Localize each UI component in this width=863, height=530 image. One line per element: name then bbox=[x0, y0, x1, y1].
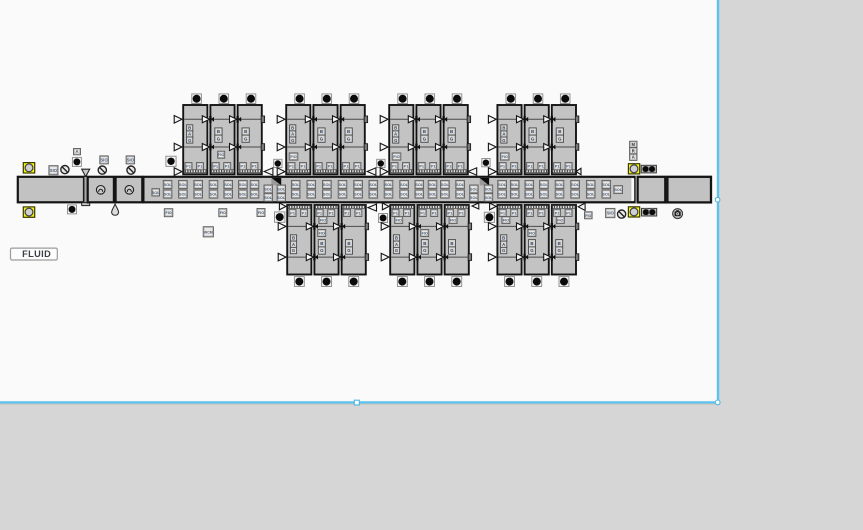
svg-text:P1: P1 bbox=[344, 164, 350, 169]
svg-text:P1: P1 bbox=[528, 164, 534, 169]
svg-text:G: G bbox=[502, 138, 505, 143]
svg-text:P1: P1 bbox=[431, 164, 437, 169]
svg-text:SOL: SOL bbox=[339, 182, 348, 187]
svg-text:SOL: SOL bbox=[224, 182, 233, 187]
svg-text:G: G bbox=[531, 136, 535, 141]
svg-text:G: G bbox=[450, 136, 454, 141]
svg-text:A: A bbox=[394, 132, 397, 137]
svg-text:SOL: SOL bbox=[498, 192, 507, 197]
svg-text:WCM: WCM bbox=[204, 230, 213, 234]
svg-text:SOL: SOL bbox=[307, 182, 316, 187]
svg-text:SOL: SOL bbox=[470, 187, 479, 192]
svg-text:SOL: SOL bbox=[470, 195, 479, 200]
svg-text:P1: P1 bbox=[432, 210, 438, 215]
svg-text:P1: P1 bbox=[316, 164, 322, 169]
svg-text:P1: P1 bbox=[329, 210, 335, 215]
svg-text:FIO: FIO bbox=[319, 232, 325, 236]
svg-text:FIO: FIO bbox=[502, 155, 508, 159]
svg-text:FIO: FIO bbox=[290, 155, 296, 159]
svg-text:P1: P1 bbox=[500, 210, 506, 215]
svg-text:P1: P1 bbox=[512, 210, 518, 215]
svg-text:SOL: SOL bbox=[369, 182, 378, 187]
svg-text:SOL: SOL bbox=[441, 192, 450, 197]
svg-text:P1: P1 bbox=[512, 164, 518, 169]
svg-text:P1: P1 bbox=[539, 164, 545, 169]
svg-text:SOL: SOL bbox=[251, 192, 260, 197]
svg-text:A: A bbox=[395, 242, 398, 247]
svg-text:G: G bbox=[557, 248, 561, 253]
svg-text:P1: P1 bbox=[355, 164, 361, 169]
svg-text:SOL: SOL bbox=[251, 182, 260, 187]
svg-text:SOL: SOL bbox=[485, 187, 494, 192]
svg-text:SOL: SOL bbox=[400, 192, 409, 197]
svg-text:A: A bbox=[188, 132, 191, 137]
svg-text:B: B bbox=[217, 129, 220, 134]
svg-text:FIO: FIO bbox=[529, 232, 535, 236]
svg-text:SOL: SOL bbox=[456, 182, 465, 187]
svg-text:P1: P1 bbox=[448, 210, 454, 215]
svg-text:A: A bbox=[632, 155, 635, 160]
svg-text:B: B bbox=[450, 129, 453, 134]
svg-text:G: G bbox=[320, 248, 324, 253]
svg-text:A: A bbox=[292, 242, 295, 247]
svg-text:B: B bbox=[347, 241, 350, 246]
svg-text:SOL: SOL bbox=[323, 192, 332, 197]
svg-text:SOL: SOL bbox=[456, 192, 465, 197]
svg-text:FIO: FIO bbox=[450, 219, 456, 223]
svg-text:SOL: SOL bbox=[210, 192, 219, 197]
svg-text:B: B bbox=[502, 126, 505, 131]
svg-text:SOL: SOL bbox=[339, 192, 348, 197]
svg-text:SIO: SIO bbox=[50, 168, 58, 173]
svg-text:SOL: SOL bbox=[239, 182, 248, 187]
svg-text:SOL: SOL bbox=[292, 182, 301, 187]
svg-text:P1: P1 bbox=[301, 164, 307, 169]
svg-text:SOL: SOL bbox=[511, 192, 520, 197]
svg-text:B: B bbox=[502, 236, 505, 241]
svg-text:FIO: FIO bbox=[396, 219, 402, 223]
svg-text:SOL: SOL bbox=[277, 187, 286, 192]
svg-text:G: G bbox=[347, 248, 351, 253]
svg-text:SOL: SOL bbox=[354, 182, 363, 187]
svg-text:P1: P1 bbox=[198, 164, 204, 169]
svg-text:P1: P1 bbox=[404, 164, 410, 169]
svg-text:P1: P1 bbox=[345, 210, 351, 215]
svg-text:G: G bbox=[217, 136, 221, 141]
svg-text:G: G bbox=[423, 248, 427, 253]
svg-text:SOL: SOL bbox=[571, 192, 580, 197]
svg-text:B: B bbox=[395, 236, 398, 241]
svg-text:SOL: SOL bbox=[429, 182, 438, 187]
svg-text:SOL: SOL bbox=[415, 182, 424, 187]
svg-text:SOL: SOL bbox=[224, 192, 233, 197]
svg-text:SOL: SOL bbox=[354, 192, 363, 197]
svg-text:P1: P1 bbox=[420, 210, 426, 215]
svg-text:B: B bbox=[558, 241, 561, 246]
svg-text:B: B bbox=[558, 129, 561, 134]
svg-text:P1: P1 bbox=[566, 164, 572, 169]
svg-text:SOL: SOL bbox=[264, 187, 273, 192]
svg-text:SIO: SIO bbox=[127, 157, 135, 162]
svg-text:B: B bbox=[320, 129, 323, 134]
svg-text:G: G bbox=[394, 138, 397, 143]
svg-text:FIO: FIO bbox=[166, 211, 172, 215]
svg-text:FIO: FIO bbox=[218, 153, 224, 157]
svg-text:B: B bbox=[423, 129, 426, 134]
svg-text:G: G bbox=[558, 136, 562, 141]
svg-text:FIO: FIO bbox=[220, 211, 226, 215]
svg-text:SOL: SOL bbox=[614, 187, 623, 192]
svg-text:P1: P1 bbox=[539, 210, 545, 215]
svg-text:FIO: FIO bbox=[393, 155, 399, 159]
svg-text:P1: P1 bbox=[317, 210, 323, 215]
svg-text:P1: P1 bbox=[392, 164, 398, 169]
svg-text:B: B bbox=[244, 129, 247, 134]
svg-text:G: G bbox=[244, 136, 248, 141]
svg-text:G: G bbox=[292, 248, 295, 253]
svg-text:P1: P1 bbox=[458, 164, 464, 169]
svg-text:P1: P1 bbox=[213, 164, 219, 169]
svg-text:SOL: SOL bbox=[385, 192, 394, 197]
svg-text:B: B bbox=[531, 129, 534, 134]
svg-text:SOL: SOL bbox=[400, 182, 409, 187]
svg-text:SOL: SOL bbox=[556, 192, 565, 197]
svg-text:SIO: SIO bbox=[100, 157, 108, 162]
svg-text:SOL: SOL bbox=[307, 192, 316, 197]
svg-text:B: B bbox=[450, 241, 453, 246]
svg-text:SOL: SOL bbox=[525, 182, 534, 187]
svg-text:SIO: SIO bbox=[607, 211, 615, 216]
svg-text:P1: P1 bbox=[356, 210, 362, 215]
svg-text:G: G bbox=[291, 138, 294, 143]
svg-text:P1: P1 bbox=[225, 164, 231, 169]
svg-text:FIO: FIO bbox=[258, 211, 264, 215]
svg-text:SOL: SOL bbox=[511, 182, 520, 187]
svg-text:FIO: FIO bbox=[503, 219, 509, 223]
svg-text:SOL: SOL bbox=[571, 182, 580, 187]
svg-text:SOL: SOL bbox=[441, 182, 450, 187]
svg-text:P1: P1 bbox=[289, 164, 295, 169]
svg-text:R: R bbox=[632, 148, 635, 153]
svg-text:SOL: SOL bbox=[323, 182, 332, 187]
svg-text:SOL: SOL bbox=[540, 182, 549, 187]
svg-text:G: G bbox=[502, 248, 505, 253]
svg-text:SOL: SOL bbox=[194, 192, 203, 197]
svg-text:FIO: FIO bbox=[320, 219, 326, 223]
svg-text:SOL: SOL bbox=[429, 192, 438, 197]
svg-text:B: B bbox=[530, 241, 533, 246]
svg-text:SOL: SOL bbox=[152, 190, 161, 195]
svg-text:FIO: FIO bbox=[585, 214, 591, 218]
svg-text:FIO: FIO bbox=[557, 219, 563, 223]
svg-text:SOL: SOL bbox=[587, 192, 596, 197]
svg-text:P1: P1 bbox=[186, 164, 192, 169]
svg-text:P1: P1 bbox=[447, 164, 453, 169]
svg-text:SOL: SOL bbox=[602, 192, 611, 197]
svg-text:B: B bbox=[394, 126, 397, 131]
svg-text:P1: P1 bbox=[302, 210, 308, 215]
svg-text:P1: P1 bbox=[528, 210, 534, 215]
svg-text:SOL: SOL bbox=[498, 182, 507, 187]
svg-text:SOL: SOL bbox=[556, 182, 565, 187]
svg-text:SOL: SOL bbox=[164, 192, 173, 197]
svg-text:FLUID: FLUID bbox=[22, 249, 51, 259]
svg-text:G: G bbox=[423, 136, 427, 141]
svg-text:SOL: SOL bbox=[239, 192, 248, 197]
svg-text:B: B bbox=[291, 126, 294, 131]
svg-text:P1: P1 bbox=[566, 210, 572, 215]
svg-text:FIO: FIO bbox=[422, 232, 428, 236]
svg-text:P1: P1 bbox=[252, 164, 258, 169]
svg-text:SOL: SOL bbox=[540, 192, 549, 197]
svg-text:SOL: SOL bbox=[415, 192, 424, 197]
svg-text:A: A bbox=[502, 242, 505, 247]
svg-text:G: G bbox=[530, 248, 534, 253]
svg-text:SOL: SOL bbox=[210, 182, 219, 187]
svg-text:SOL: SOL bbox=[587, 182, 596, 187]
svg-text:SOL: SOL bbox=[264, 195, 273, 200]
svg-text:SOL: SOL bbox=[602, 182, 611, 187]
svg-text:B: B bbox=[320, 241, 323, 246]
svg-text:SOL: SOL bbox=[179, 192, 188, 197]
svg-text:P1: P1 bbox=[405, 210, 411, 215]
svg-text:P1: P1 bbox=[555, 164, 561, 169]
svg-text:G: G bbox=[188, 138, 191, 143]
svg-text:SOL: SOL bbox=[164, 182, 173, 187]
svg-text:SOL: SOL bbox=[369, 192, 378, 197]
svg-text:B: B bbox=[347, 129, 350, 134]
svg-text:B: B bbox=[188, 126, 191, 131]
svg-text:P1: P1 bbox=[328, 164, 334, 169]
svg-text:SOL: SOL bbox=[179, 182, 188, 187]
svg-text:SOL: SOL bbox=[292, 192, 301, 197]
svg-text:A: A bbox=[502, 132, 505, 137]
svg-text:G: G bbox=[450, 248, 454, 253]
svg-text:G: G bbox=[320, 136, 324, 141]
svg-text:G: G bbox=[347, 136, 351, 141]
svg-text:P1: P1 bbox=[419, 164, 425, 169]
svg-text:SOL: SOL bbox=[385, 182, 394, 187]
svg-text:P1: P1 bbox=[393, 210, 399, 215]
svg-text:B: B bbox=[423, 241, 426, 246]
svg-text:SOL: SOL bbox=[525, 192, 534, 197]
svg-text:SOL: SOL bbox=[277, 195, 286, 200]
svg-text:P1: P1 bbox=[459, 210, 465, 215]
svg-text:P1: P1 bbox=[290, 210, 296, 215]
svg-text:M: M bbox=[632, 142, 636, 147]
svg-text:P1: P1 bbox=[555, 210, 561, 215]
svg-text:P1: P1 bbox=[500, 164, 506, 169]
svg-text:A: A bbox=[291, 132, 294, 137]
svg-text:B: B bbox=[292, 236, 295, 241]
svg-text:P1: P1 bbox=[241, 164, 247, 169]
svg-text:G: G bbox=[395, 248, 398, 253]
svg-text:SOL: SOL bbox=[194, 182, 203, 187]
svg-text:SOL: SOL bbox=[485, 195, 494, 200]
